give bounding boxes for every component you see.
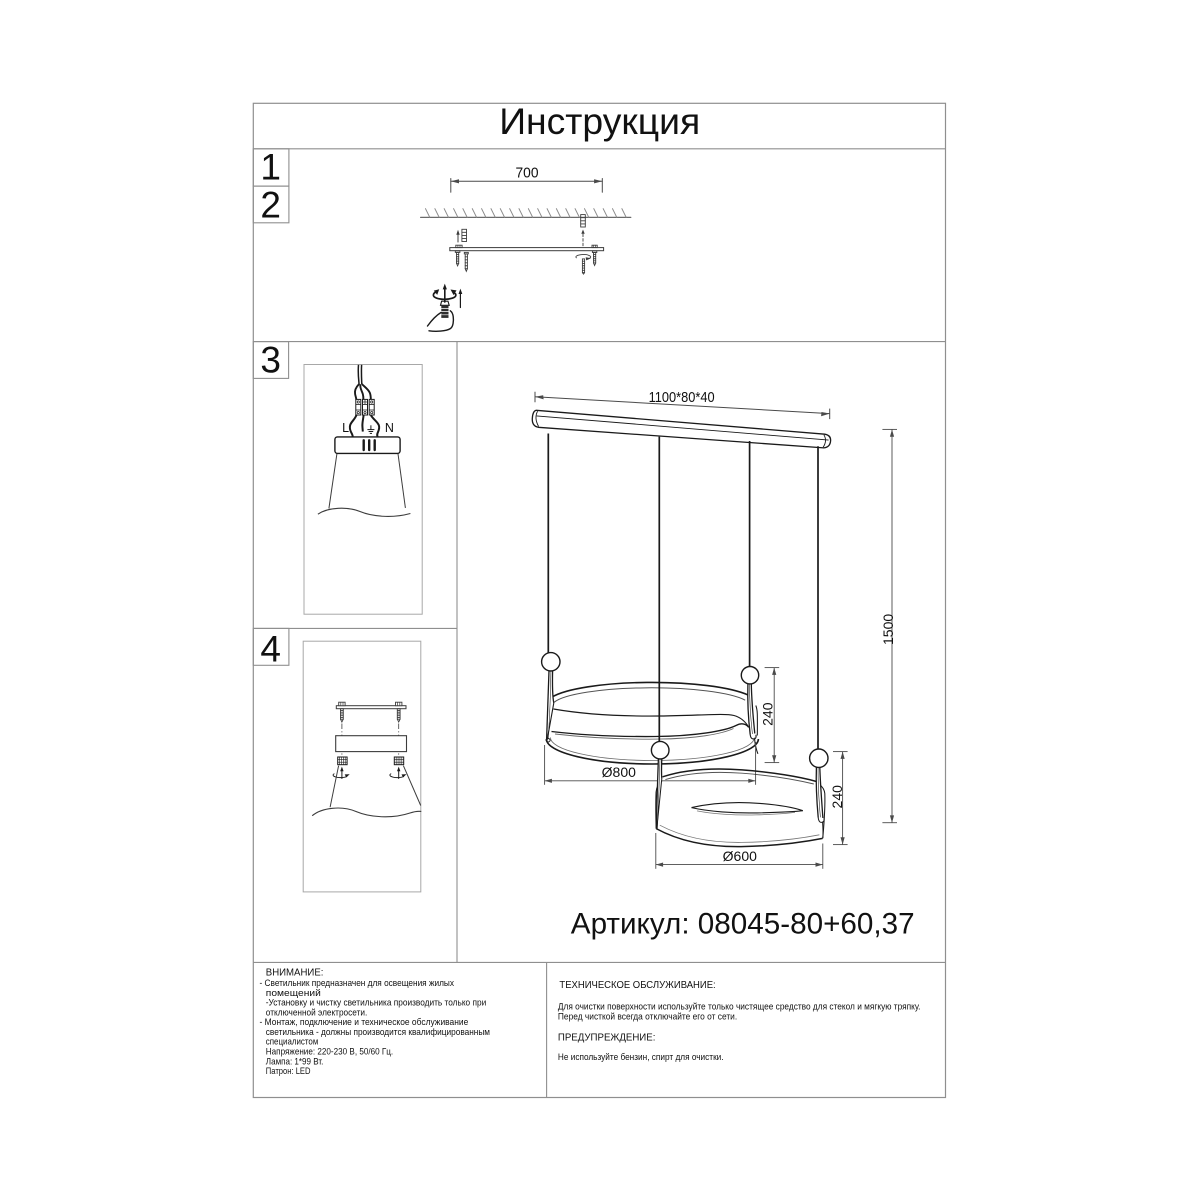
svg-text:Не используйте бензин, спирт д: Не используйте бензин, спирт для очистки…: [558, 1052, 724, 1062]
svg-text:240: 240: [829, 785, 845, 809]
svg-text:- Светильник предназначен для: - Светильник предназначен для освещения …: [260, 978, 455, 988]
svg-text:Перед чисткой всегда отключайт: Перед чисткой всегда отключайте его от с…: [558, 1012, 737, 1022]
svg-text:3: 3: [260, 340, 281, 381]
svg-text:- Монтаж, подключение и технич: - Монтаж, подключение и техническое обсл…: [260, 1017, 469, 1027]
svg-text:светильника - должны производи: светильника - должны производится квалиф…: [266, 1027, 490, 1037]
svg-text:Патрон: LED: Патрон: LED: [266, 1066, 311, 1076]
svg-text:ВНИМАНИЕ:: ВНИМАНИЕ:: [266, 968, 324, 979]
svg-text:1: 1: [260, 147, 281, 188]
svg-text:N: N: [385, 421, 394, 435]
svg-text:L: L: [342, 421, 349, 435]
svg-text:помещений: помещений: [266, 988, 321, 998]
svg-text:1500: 1500: [880, 614, 896, 645]
svg-text:Инструкция: Инструкция: [499, 100, 700, 142]
svg-text:Ø800: Ø800: [602, 764, 636, 780]
svg-text:2: 2: [260, 185, 281, 226]
svg-text:отключенной электросети.: отключенной электросети.: [266, 1007, 368, 1017]
svg-text:Артикул: 08045-80+60,37: Артикул: 08045-80+60,37: [571, 907, 915, 940]
svg-text:Лампа: 1*99 Вт.: Лампа: 1*99 Вт.: [266, 1056, 324, 1066]
svg-text:Напряжение: 220-230 В, 50/60 Г: Напряжение: 220-230 В, 50/60 Гц.: [266, 1047, 393, 1057]
svg-text:4: 4: [260, 629, 281, 670]
svg-text:Для очистки поверхности исполь: Для очистки поверхности используйте толь…: [558, 1001, 921, 1011]
svg-text:Ø600: Ø600: [723, 848, 757, 864]
svg-text:700: 700: [516, 164, 539, 181]
svg-text:специалистом: специалистом: [266, 1037, 319, 1047]
svg-text:240: 240: [759, 702, 775, 726]
svg-text:-Установку и чистку светильник: -Установку и чистку светильника производ…: [266, 998, 486, 1008]
svg-text:ПРЕДУПРЕЖДЕНИЕ:: ПРЕДУПРЕЖДЕНИЕ:: [558, 1031, 656, 1043]
svg-text:ТЕХНИЧЕСКОЕ ОБСЛУЖИВАНИЕ:: ТЕХНИЧЕСКОЕ ОБСЛУЖИВАНИЕ:: [559, 979, 715, 991]
